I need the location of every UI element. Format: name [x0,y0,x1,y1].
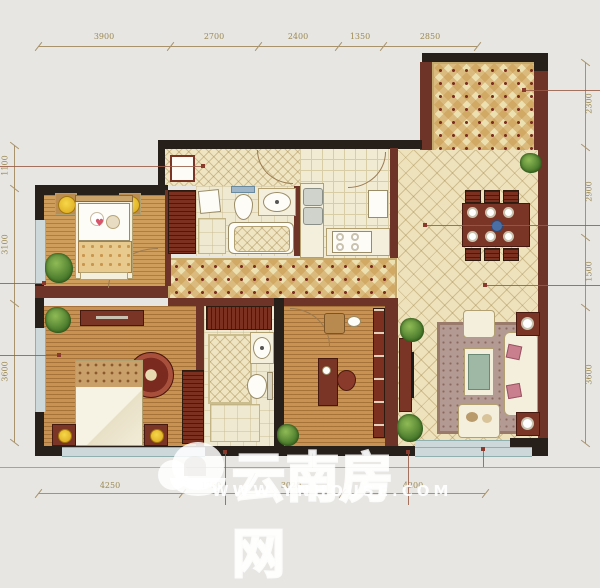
dining-chair [484,248,500,261]
leader-dot [423,223,427,227]
kids-bed-sheet [78,203,130,241]
dim-label: 2850 [400,32,460,41]
plant [400,318,424,342]
plate [467,207,478,218]
entry-porch-floor [432,62,538,152]
study-side-table [324,313,345,334]
kids-bed-footboard [80,272,128,280]
wall [534,53,548,71]
ensuite-toilet-tank [267,372,273,400]
teddy-toy [106,215,120,229]
center-bowl [491,220,503,232]
dining-chair [503,190,519,203]
wall [534,71,548,150]
heart-icon: ♥ [95,218,104,229]
dining-chair [503,248,519,261]
kids-bed-headboard [75,195,133,202]
coffee-table-top [468,354,490,390]
leader-dot [483,283,487,287]
sofa-pillow [506,344,523,361]
kids-lamp [58,196,76,214]
bench-decor [466,412,478,422]
leader-dot [201,164,205,168]
desk-item [322,366,331,375]
lamp [150,429,164,443]
kids-blanket [78,241,132,273]
armchair [463,310,495,338]
dim-label: 3600 [1,352,10,392]
washing-machine [198,189,221,214]
plate [485,231,496,242]
plate [485,207,496,218]
window [35,220,46,284]
leader-line [0,355,60,356]
wall [420,62,432,150]
ensuite-closet [206,306,272,330]
leader-line [425,225,600,226]
dim-label: 2900 [585,172,594,212]
kitchen-sink [303,188,323,206]
plant [45,253,73,283]
master-wardrobe [182,370,204,444]
hall-wardrobe [168,190,196,254]
watermark-url: WWW.YNHOUSE.COM [212,482,452,500]
dim-label: 1350 [330,32,390,41]
leader-line [485,285,600,286]
sofa-pillow [506,383,522,399]
dim-label: 3100 [1,225,10,265]
lamp [58,429,72,443]
dim-label: 2700 [184,32,244,41]
leader-line [0,283,44,284]
dining-chair [465,190,481,203]
table-lamp [521,417,534,430]
sink-drain [275,200,279,204]
bookshelf [373,308,385,438]
leader-line [524,90,600,91]
dim-label: 4250 [80,481,140,490]
bath-mat [198,218,226,254]
floorplan-screenshot: { "dimensions": { "top": ["3900", "2700"… [0,0,600,517]
leader-dot [223,450,227,454]
master-bed-runner [76,361,142,388]
table-lamp [521,317,534,330]
leader-dot [42,281,46,285]
plant [45,307,71,333]
plate [503,207,514,218]
bathtub-inner [234,226,290,252]
dim-label: 3600 [585,355,594,395]
desk [318,358,338,406]
leader-dot [522,88,526,92]
wall [158,140,165,186]
burner [351,233,359,241]
fridge [368,190,388,218]
plate [503,231,514,242]
plate [467,231,478,242]
burner [351,243,359,251]
dim-label: 3900 [74,32,134,41]
dining-chair [465,248,481,261]
dining-chair [484,190,500,203]
dresser-handle [96,316,128,319]
wall [538,150,548,446]
study-plate [347,316,361,327]
watermark-brand: 云南房网 [232,436,442,588]
leader-line [0,166,204,167]
leader-dot [481,447,485,451]
tv [411,352,414,398]
ensuite-mat [208,334,252,404]
wall [158,140,422,149]
kitchen-sink [303,207,323,225]
cloud-logo-hole [184,456,206,476]
burner [336,243,344,251]
dim-label: 2400 [268,32,328,41]
plant [520,153,542,173]
master-bed-duvet [76,387,142,445]
window [35,328,46,412]
corridor-floor [168,258,397,302]
leader-line [483,450,484,467]
shoe-cabinet [170,155,195,182]
wall [385,298,398,446]
bench-decor [482,414,492,423]
wall [390,148,398,258]
burner [336,233,344,241]
toilet-tank [231,186,255,193]
leader-dot [57,353,61,357]
sink-drain [260,346,264,350]
bench [458,404,500,438]
wall [422,53,548,62]
